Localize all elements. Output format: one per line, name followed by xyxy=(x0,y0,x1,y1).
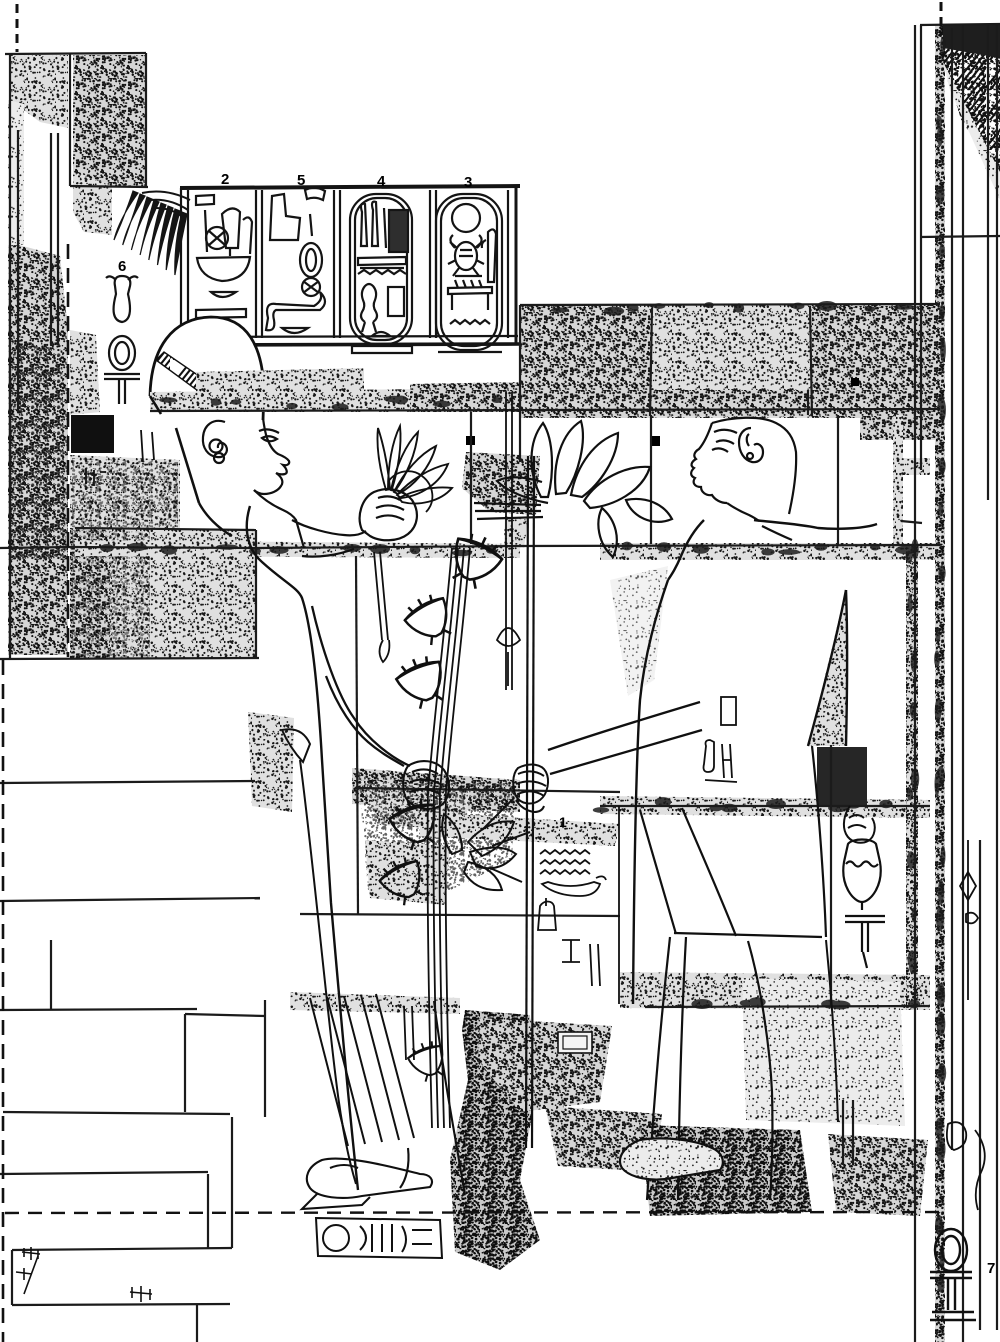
svg-text:1: 1 xyxy=(559,814,567,830)
svg-text:7: 7 xyxy=(987,1260,995,1277)
svg-text:4: 4 xyxy=(377,173,386,190)
svg-text:5: 5 xyxy=(297,172,305,189)
svg-text:2: 2 xyxy=(221,171,229,188)
svg-text:3: 3 xyxy=(464,174,472,191)
svg-text:6: 6 xyxy=(118,258,126,275)
